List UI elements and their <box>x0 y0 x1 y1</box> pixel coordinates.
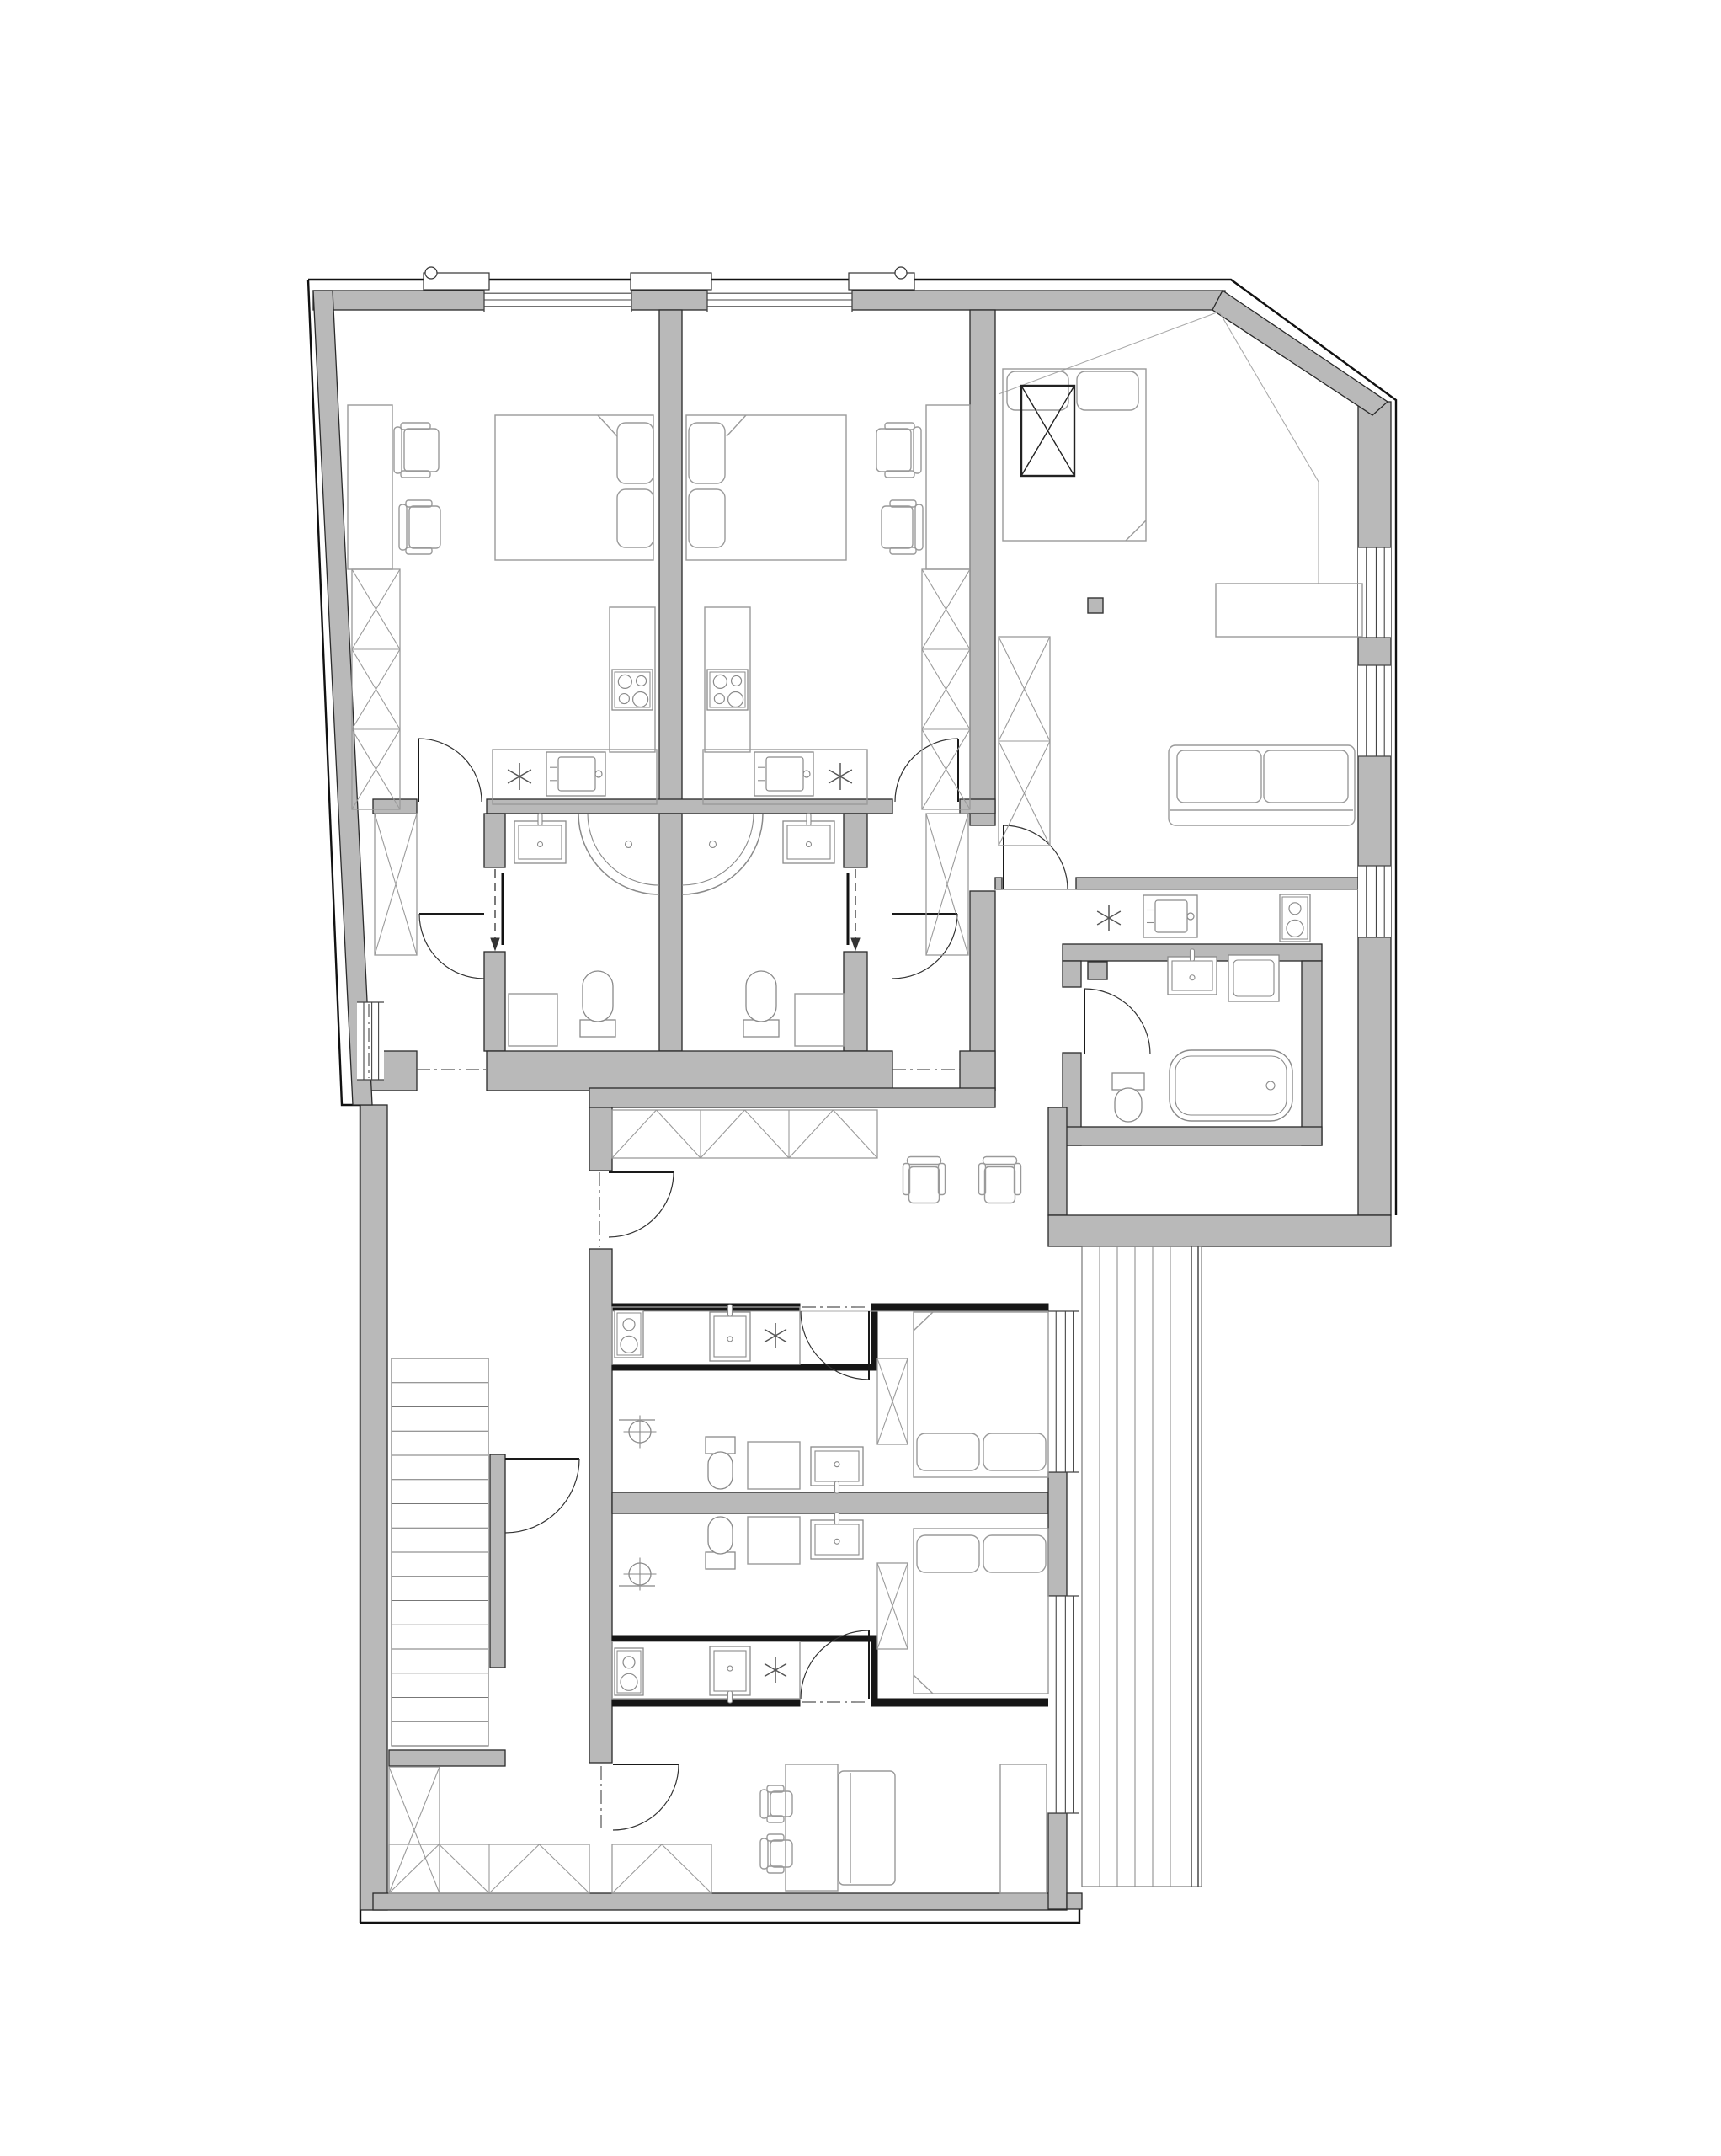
right-window-3 <box>1358 866 1391 937</box>
bath-top-wall-b <box>487 799 892 814</box>
hall-left-wall-b <box>484 952 505 1051</box>
south-block-wall <box>1048 1215 1391 1246</box>
corridor-right-wall-a <box>589 1107 612 1171</box>
terrace-window-2 <box>1048 1596 1079 1813</box>
bath2-right-wall <box>1302 961 1322 1145</box>
bathtub <box>1170 1050 1292 1121</box>
stair-bottom-wall <box>389 1750 505 1766</box>
kitchen-sink <box>754 752 813 796</box>
bath-sink-faucet <box>835 1481 839 1493</box>
unit1-door-wall <box>871 1307 877 1370</box>
unit1-top-wall-b <box>871 1304 1048 1311</box>
bath-right-wall-a <box>844 814 867 867</box>
floor-plan-page <box>0 0 1721 2156</box>
kitchen-sink <box>546 752 605 796</box>
bath-sink <box>811 1520 863 1559</box>
stove <box>615 1648 643 1695</box>
entry-door-gap <box>357 1002 384 1080</box>
kitchen-sink <box>1143 895 1197 937</box>
bath2-left-wall-a <box>1063 961 1081 987</box>
bath-sink <box>811 1447 863 1486</box>
toilet-tank <box>743 1020 779 1037</box>
terrace-window-1 <box>1048 1311 1079 1472</box>
unit2-bottom-wall-a <box>612 1699 800 1706</box>
stair-right-wall <box>490 1454 505 1668</box>
window-pier-a <box>1048 1472 1067 1596</box>
toilet-tank <box>1112 1073 1144 1090</box>
bath2-bottom-wall <box>1063 1127 1322 1145</box>
toilet-bowl <box>708 1517 733 1554</box>
kitchen-sink-faucet <box>728 1691 733 1703</box>
toilet-bowl <box>746 971 776 1022</box>
left-wall-lower <box>360 1105 387 1910</box>
living-top-wall <box>589 1088 995 1107</box>
bath-sink-faucet <box>1191 949 1195 961</box>
stove <box>1280 894 1310 942</box>
bath-bottom-wall-c <box>960 1051 995 1091</box>
window-sill <box>631 273 711 290</box>
toilet-bowl <box>708 1452 733 1489</box>
units-middle-wall <box>612 1492 1048 1513</box>
floor-plan-drawing <box>0 0 1721 2156</box>
bath-sink-faucet <box>835 1513 839 1524</box>
toilet-bowl <box>583 971 613 1022</box>
column <box>1088 598 1103 613</box>
toilet-bowl <box>1115 1088 1142 1122</box>
living-right-wall <box>1048 1107 1067 1215</box>
bath-sink <box>1168 957 1217 995</box>
bottom-wall <box>373 1893 1067 1910</box>
bath-sink-faucet <box>538 814 542 825</box>
washing-machine <box>1228 955 1279 1001</box>
window-pier-b <box>1048 1813 1067 1909</box>
bath-center-wall <box>659 814 682 1051</box>
toilet-tank <box>706 1437 735 1454</box>
unit2-door-wall <box>871 1636 877 1699</box>
hall-left-wall-a <box>484 814 505 867</box>
stove <box>615 1310 643 1358</box>
kitchen-sink-faucet <box>728 1305 733 1316</box>
toilet-tank <box>580 1020 615 1037</box>
studio2-right-wall-a <box>970 310 995 825</box>
corridor-right-wall-b <box>589 1249 612 1763</box>
right-wall-upper <box>1358 402 1391 1215</box>
column <box>1088 962 1107 979</box>
right-window-2 <box>1358 665 1391 756</box>
bath-sink-faucet <box>807 814 811 825</box>
corner-step <box>1067 1893 1082 1909</box>
studio-divider-wall <box>659 310 682 814</box>
vent-circle <box>425 267 437 279</box>
kitchen-top-wall-a <box>995 878 1002 889</box>
toilet-tank <box>706 1552 735 1569</box>
bath-bottom-wall-b <box>487 1051 892 1091</box>
kitchen-top-wall-b <box>1076 878 1358 889</box>
bath-right-wall-b <box>844 952 867 1051</box>
unit1-bath-wall <box>612 1364 877 1370</box>
right-window-1 <box>1358 547 1391 638</box>
unit2-bottom-wall-b <box>871 1699 1048 1706</box>
vent-circle <box>895 267 907 279</box>
